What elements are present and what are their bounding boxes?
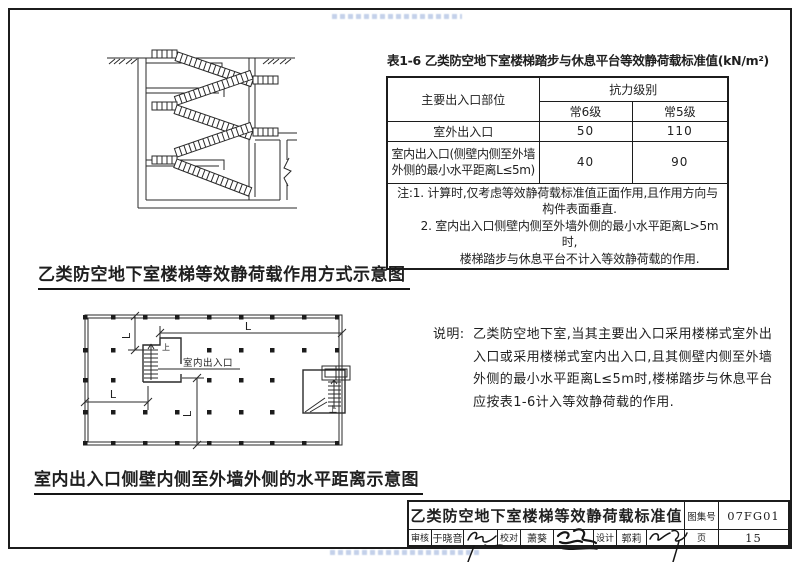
page-number: 15 xyxy=(719,530,788,545)
signature-scribble xyxy=(462,524,506,558)
indoor-entrance-label: 室内出入口 xyxy=(183,357,233,369)
atlas-no-value: 07FG01 xyxy=(719,502,788,529)
row-outdoor-grade6: 50 xyxy=(539,121,632,141)
table-notes: 注:1. 计算时,仅考虑等效静荷载标准值正面作用,且作用方向与 构件表面垂直. … xyxy=(387,183,728,269)
signature-scribble xyxy=(552,524,600,556)
checker-name: 萧葵 xyxy=(521,530,554,545)
title-block: 乙类防空地下室楼梯等效静荷载标准值 图集号 07FG01 审核 于晓音 校对 萧… xyxy=(407,500,790,547)
load-table: 主要出入口部位 抗力级别 常6级 常5级 室外出入口 50 110 室内出入口(… xyxy=(386,76,729,270)
watermark-top xyxy=(332,14,462,19)
header-resistance-group: 抗力级别 xyxy=(539,77,728,101)
section-figure xyxy=(95,42,307,214)
row-indoor-grade6: 40 xyxy=(539,141,632,183)
description-text: 乙类防空地下室,当其主要出入口采用楼梯式室外出 入口或采用楼梯式室内出入口,且其… xyxy=(473,324,773,414)
dim-mid-vertical: L xyxy=(181,374,204,449)
designer-name: 郭莉 xyxy=(617,530,647,545)
svg-text:L: L xyxy=(181,410,194,417)
page-label: 页 xyxy=(685,530,719,545)
table-title: 表1-6 乙类防空地下室楼梯踏步与休息平台等效静荷载标准值(kN/m²) xyxy=(387,50,732,69)
stair-flights xyxy=(152,50,278,196)
plan-figure-caption: 室内出入口侧壁内侧至外墙外侧的水平距离示意图 xyxy=(34,465,423,495)
description-block: 说明: 乙类防空地下室,当其主要出入口采用楼梯式室外出 入口或采用楼梯式室内出入… xyxy=(433,324,773,414)
checker-signature xyxy=(554,530,594,545)
description-label: 说明: xyxy=(433,324,473,414)
table-row: 室外出入口 50 110 xyxy=(387,121,728,141)
watermark-bottom xyxy=(330,550,480,555)
up-label-left: 上 xyxy=(162,343,170,352)
dim-top: L xyxy=(156,320,346,340)
svg-text:L: L xyxy=(245,320,252,333)
row-outdoor-label: 室外出入口 xyxy=(387,121,539,141)
signature-scribble xyxy=(645,524,689,560)
svg-text:L: L xyxy=(120,332,133,339)
up-label-right: 上 xyxy=(329,405,337,414)
dim-bottom-left: L xyxy=(81,386,152,410)
plan-right-stairwell: 上 xyxy=(303,366,350,414)
row-indoor-label: 室内出入口(侧壁内侧至外墙 外侧的最小水平距离L≤5m) xyxy=(387,141,539,183)
atlas-no-label: 图集号 xyxy=(685,502,719,529)
load-table-block: 表1-6 乙类防空地下室楼梯踏步与休息平台等效静荷载标准值(kN/m²) 主要出… xyxy=(386,50,732,270)
header-grade6: 常6级 xyxy=(539,101,632,121)
plan-figure: 上 室内出入口 上 L L L L xyxy=(58,303,390,455)
designer-signature xyxy=(647,530,685,545)
table-row: 室内出入口(侧壁内侧至外墙 外侧的最小水平距离L≤5m) 40 90 xyxy=(387,141,728,183)
sheet-title: 乙类防空地下室楼梯等效静荷载标准值 xyxy=(409,502,685,529)
header-part: 主要出入口部位 xyxy=(387,77,539,121)
break-line xyxy=(284,158,291,186)
reviewer-label: 审核 xyxy=(409,530,432,545)
header-grade5: 常5级 xyxy=(632,101,728,121)
reviewer-signature xyxy=(464,530,498,545)
row-indoor-grade5: 90 xyxy=(632,141,728,183)
section-figure-caption: 乙类防空地下室楼梯等效静荷载作用方式示意图 xyxy=(38,260,410,290)
row-outdoor-grade5: 110 xyxy=(632,121,728,141)
svg-text:L: L xyxy=(110,388,117,401)
reviewer-name: 于晓音 xyxy=(432,530,464,545)
